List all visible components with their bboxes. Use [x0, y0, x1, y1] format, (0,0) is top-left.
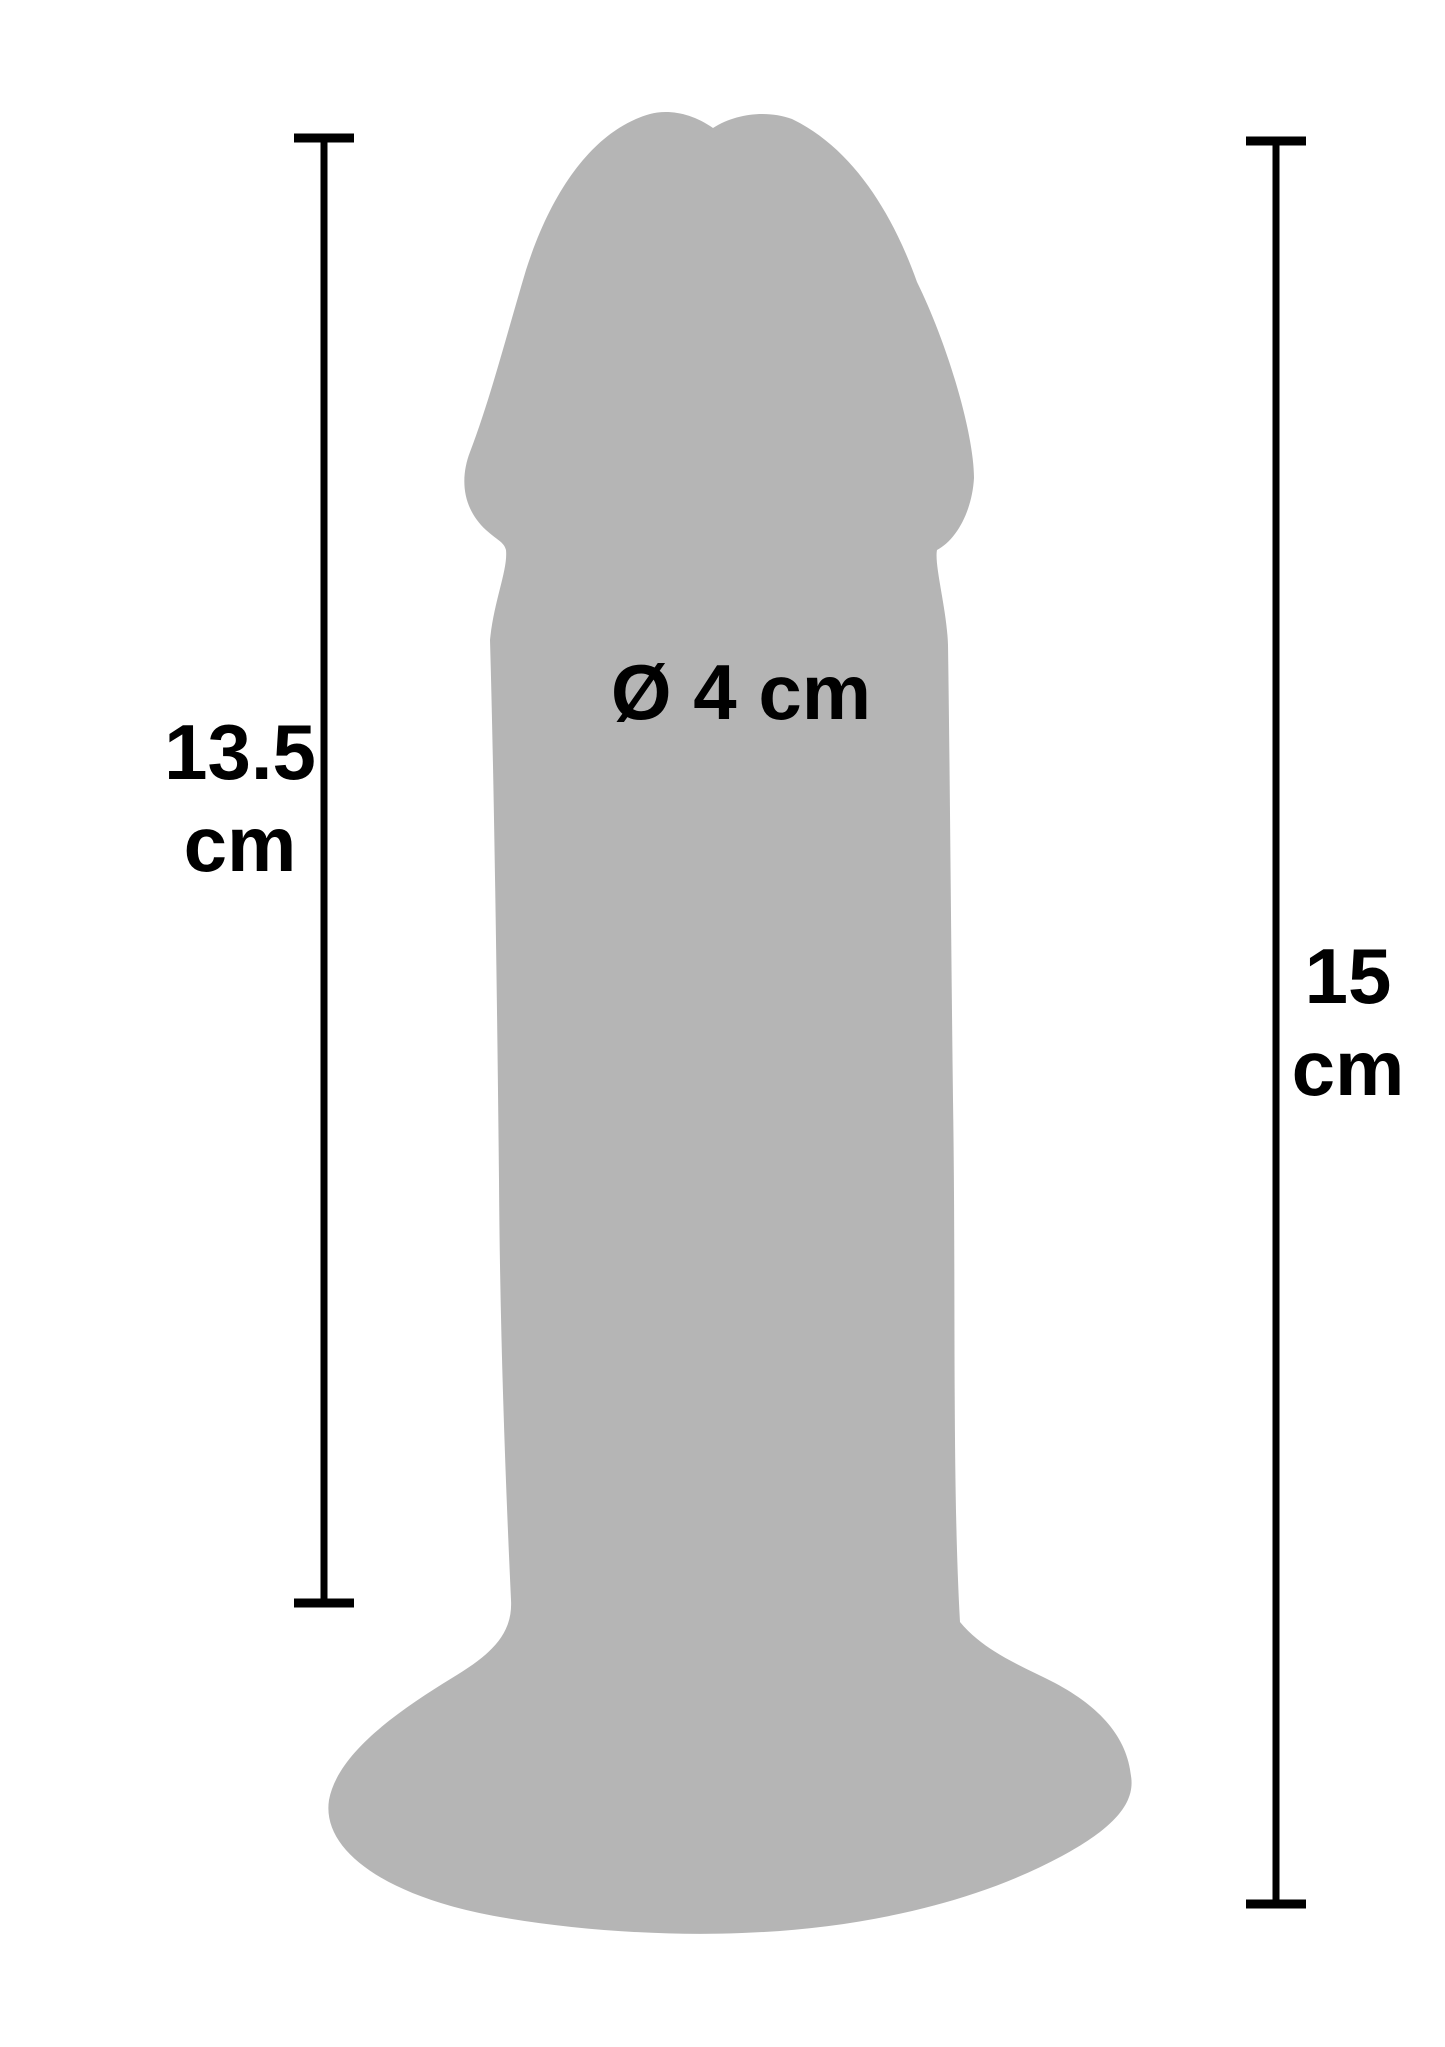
diameter-label: Ø 4 cm — [551, 646, 931, 738]
right-dimension-unit: cm — [1218, 1022, 1445, 1114]
left-dimension-label: 13.5 cm — [110, 706, 370, 890]
left-dimension-value: 13.5 — [110, 706, 370, 798]
product-dimension-diagram: 13.5 cm Ø 4 cm 15 cm — [0, 0, 1445, 2047]
right-dimension-label: 15 cm — [1218, 930, 1445, 1114]
product-silhouette — [328, 112, 1131, 1934]
right-dimension-value: 15 — [1218, 930, 1445, 1022]
left-dimension-unit: cm — [110, 798, 370, 890]
